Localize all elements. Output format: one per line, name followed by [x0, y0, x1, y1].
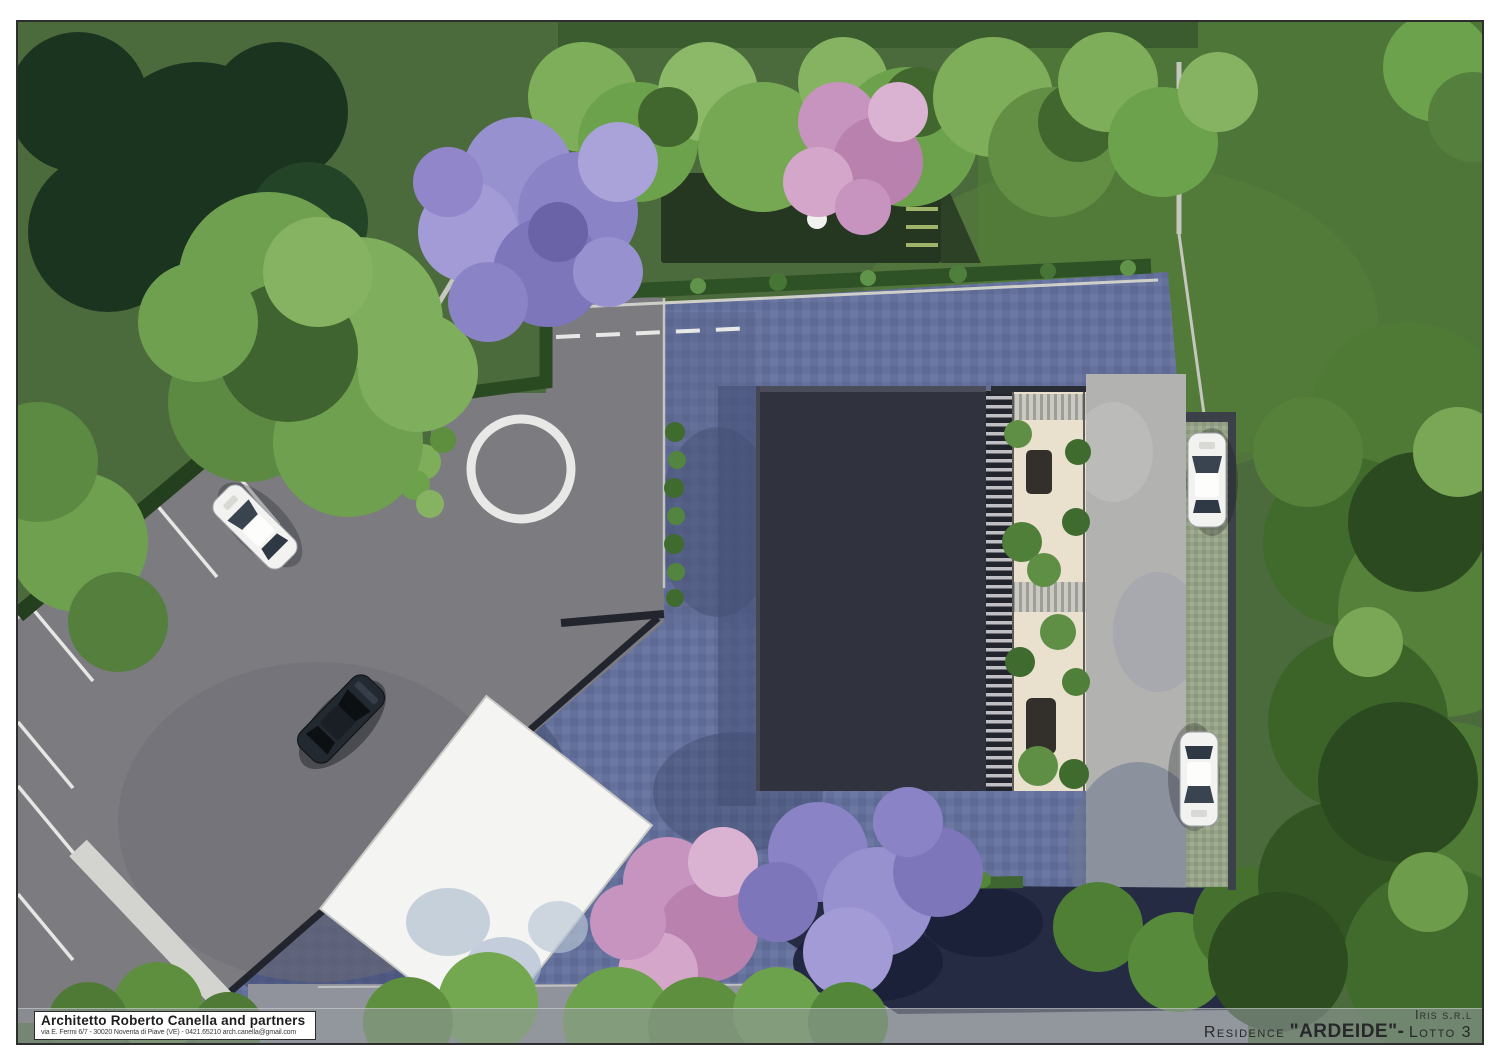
site-plan-rendering: Architetto Roberto Canella and partners …	[16, 20, 1484, 1045]
project-title-block: Iris s.r.l Residence "ARDEIDE"- Lotto 3	[1204, 1008, 1472, 1042]
parked-car-white-right-top	[1186, 428, 1238, 536]
residence-name: "ARDEIDE"-	[1290, 1021, 1405, 1042]
architect-title-block: Architetto Roberto Canella and partners …	[34, 1011, 316, 1040]
residence-label: Residence	[1204, 1024, 1285, 1041]
parked-car-white-right-bottom	[1168, 723, 1220, 831]
architect-name: Architetto Roberto Canella and partners	[41, 1013, 309, 1028]
main-building	[718, 386, 1091, 806]
building-shadow	[718, 386, 756, 806]
aerial-render-canvas	[18, 22, 1482, 1043]
terrace-table	[1026, 698, 1056, 754]
terrace-table	[1026, 450, 1052, 494]
building-roof	[756, 386, 986, 791]
drawing-sheet: Architetto Roberto Canella and partners …	[0, 0, 1500, 1060]
lot-label: Lotto 3	[1409, 1024, 1472, 1041]
title-band: Architetto Roberto Canella and partners …	[18, 1008, 1482, 1043]
architect-address: via E. Fermi 6/7 - 30020 Noventa di Piav…	[41, 1029, 309, 1036]
louvered-pergola	[986, 390, 1012, 791]
project-title: Residence "ARDEIDE"- Lotto 3	[1204, 1022, 1472, 1042]
terrace-deck	[1002, 392, 1091, 791]
client-name: Iris s.r.l	[1204, 1008, 1472, 1022]
